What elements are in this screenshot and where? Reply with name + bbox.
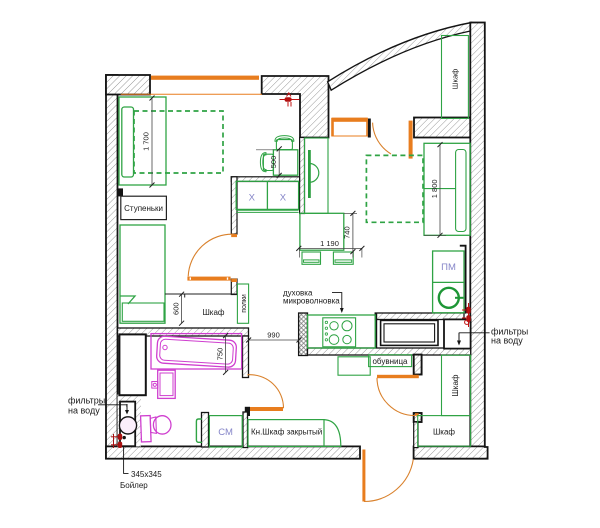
svg-text:Бойлер: Бойлер [120,481,148,490]
svg-text:Шкаф: Шкаф [451,374,460,396]
svg-text:Шкаф: Шкаф [433,428,455,437]
svg-text:345x345: 345x345 [131,470,162,479]
svg-text:СМ: СМ [218,427,233,438]
svg-text:750: 750 [215,348,224,361]
svg-text:1 700: 1 700 [142,132,151,151]
svg-text:на воду: на воду [68,406,100,416]
svg-text:1 800: 1 800 [430,179,439,198]
svg-text:500: 500 [269,156,278,169]
svg-text:Кн.Шкаф закрытый: Кн.Шкаф закрытый [251,428,322,437]
svg-text:полки: полки [241,294,248,313]
svg-text:Шкаф: Шкаф [451,69,460,90]
svg-text:X: X [280,193,287,204]
svg-text:740: 740 [343,226,352,239]
svg-text:600: 600 [171,302,180,315]
svg-text:Ступеньки: Ступеньки [124,204,163,213]
svg-text:X: X [249,193,256,204]
svg-text:фильтры: фильтры [68,396,105,406]
svg-text:на воду: на воду [491,336,523,346]
svg-text:1 190: 1 190 [320,239,339,248]
svg-text:Шкаф: Шкаф [202,308,224,317]
svg-text:обувница: обувница [372,357,408,366]
svg-text:ПМ: ПМ [441,262,456,273]
svg-text:990: 990 [267,331,280,340]
svg-text:микроволновка: микроволновка [283,297,340,306]
